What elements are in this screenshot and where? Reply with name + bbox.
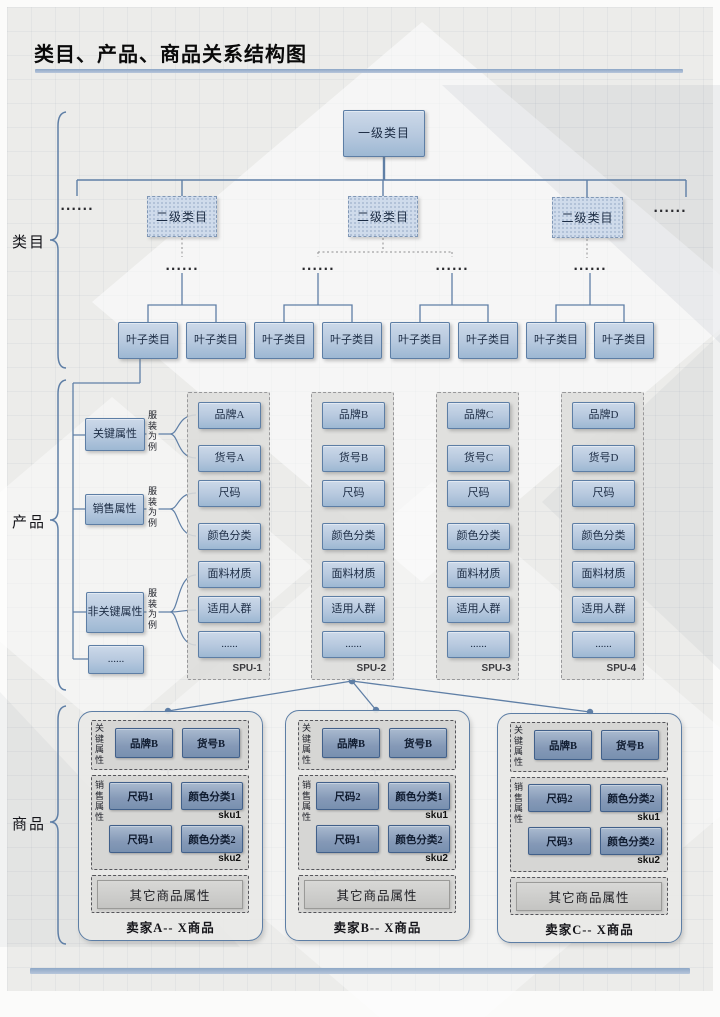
- sku-tag: sku1: [605, 812, 660, 823]
- spu-item: 品牌D: [572, 402, 635, 429]
- seller-sales-attr-label: 销售属性: [94, 780, 105, 822]
- spu-item: 面料材质: [322, 561, 385, 588]
- clothing-example-note: 服装为例: [147, 486, 158, 528]
- seller-brand-box: 品牌B: [115, 728, 173, 758]
- sku-color-box: 颜色分类1: [181, 782, 243, 810]
- spu-item: 货号D: [572, 445, 635, 472]
- seller-brand-box: 品牌B: [534, 730, 592, 760]
- spu-item: ......: [572, 631, 635, 658]
- seller-name: 卖家B-- X商品: [285, 917, 470, 936]
- sku-color-box: 颜色分类2: [388, 825, 450, 853]
- leaf-category-box: 叶子类目: [594, 322, 654, 359]
- spu-name: SPU-2: [319, 663, 386, 674]
- ellipsis-hidden-levels: ......: [572, 259, 608, 273]
- sku-size-box: 尺码1: [109, 825, 172, 853]
- sku-color-box: 颜色分类2: [181, 825, 243, 853]
- seller-article-box: 货号B: [601, 730, 659, 760]
- more-attributes-box: ......: [88, 645, 144, 674]
- spu-item: 颜色分类: [447, 523, 510, 550]
- leaf-category-box: 叶子类目: [118, 322, 178, 359]
- sku-size-box: 尺码2: [316, 782, 379, 810]
- spu-item: 货号B: [322, 445, 385, 472]
- ellipsis-hidden-levels: ......: [300, 259, 336, 273]
- level2-category-box: 二级类目: [552, 197, 623, 238]
- level2-category-box: 二级类目: [147, 196, 217, 237]
- seller-brand-box: 品牌B: [322, 728, 380, 758]
- spu-name: SPU-1: [195, 663, 262, 674]
- sku-size-box: 尺码1: [109, 782, 172, 810]
- other-attributes-box: 其它商品属性: [516, 882, 662, 911]
- spu-item: ......: [322, 631, 385, 658]
- nonkey-attributes-box: 非关键属性: [86, 592, 144, 633]
- spu-item: 适用人群: [572, 596, 635, 623]
- spu-item: 适用人群: [447, 596, 510, 623]
- spu-item: 尺码: [198, 480, 261, 507]
- spu-item: 颜色分类: [198, 523, 261, 550]
- level1-category-box: 一级类目: [343, 110, 425, 157]
- spu-name: SPU-4: [569, 663, 636, 674]
- key-attributes-box: 关键属性: [85, 418, 145, 451]
- sku-tag: sku1: [393, 810, 448, 821]
- clothing-example-note: 服装为例: [147, 588, 158, 630]
- ellipsis-hidden-levels: ......: [434, 259, 470, 273]
- sku-tag: sku2: [186, 853, 241, 864]
- leaf-category-box: 叶子类目: [186, 322, 246, 359]
- ellipsis-more-categories: ......: [650, 201, 690, 215]
- spu-item: 颜色分类: [572, 523, 635, 550]
- diagram-page: 类目、产品、商品关系结构图 类目 产品 商品 一级类目 二级类目 二级类目 二级…: [0, 0, 720, 1017]
- seller-name: 卖家C-- X商品: [497, 919, 682, 938]
- leaf-category-box: 叶子类目: [526, 322, 586, 359]
- seller-key-attr-label: 关键属性: [513, 725, 524, 767]
- sku-size-box: 尺码3: [528, 827, 591, 855]
- sku-size-box: 尺码2: [528, 784, 591, 812]
- sku-color-box: 颜色分类1: [388, 782, 450, 810]
- section-label-commodity: 商品: [12, 813, 46, 834]
- seller-key-attr-label: 关键属性: [301, 723, 312, 765]
- page-title: 类目、产品、商品关系结构图: [34, 38, 307, 67]
- spu-item: 品牌B: [322, 402, 385, 429]
- seller-key-attr-label: 关键属性: [94, 723, 105, 765]
- leaf-category-box: 叶子类目: [458, 322, 518, 359]
- level2-category-box: 二级类目: [348, 196, 418, 237]
- seller-article-box: 货号B: [389, 728, 447, 758]
- sku-color-box: 颜色分类2: [600, 827, 662, 855]
- spu-item: 适用人群: [322, 596, 385, 623]
- spu-item: 尺码: [322, 480, 385, 507]
- sku-color-box: 颜色分类2: [600, 784, 662, 812]
- spu-item: 面料材质: [447, 561, 510, 588]
- spu-name: SPU-3: [444, 663, 511, 674]
- leaf-category-box: 叶子类目: [322, 322, 382, 359]
- seller-name: 卖家A-- X商品: [78, 917, 263, 936]
- sku-tag: sku2: [393, 853, 448, 864]
- spu-item: 货号C: [447, 445, 510, 472]
- spu-item: 货号A: [198, 445, 261, 472]
- sku-size-box: 尺码1: [316, 825, 379, 853]
- other-attributes-box: 其它商品属性: [304, 880, 450, 909]
- seller-sales-attr-label: 销售属性: [301, 780, 312, 822]
- spu-item: 面料材质: [572, 561, 635, 588]
- ellipsis-more-categories: ......: [57, 199, 97, 213]
- spu-item: 品牌A: [198, 402, 261, 429]
- seller-article-box: 货号B: [182, 728, 240, 758]
- spu-item: 尺码: [572, 480, 635, 507]
- spu-item: 品牌C: [447, 402, 510, 429]
- spu-item: 适用人群: [198, 596, 261, 623]
- section-label-product: 产品: [12, 511, 46, 532]
- clothing-example-note: 服装为例: [147, 410, 158, 452]
- sku-tag: sku1: [186, 810, 241, 821]
- ellipsis-hidden-levels: ......: [164, 259, 200, 273]
- sales-attributes-box: 销售属性: [85, 494, 144, 525]
- sku-tag: sku2: [605, 855, 660, 866]
- spu-item: ......: [198, 631, 261, 658]
- spu-item: 面料材质: [198, 561, 261, 588]
- footer-rule: [30, 968, 690, 974]
- seller-sales-attr-label: 销售属性: [513, 782, 524, 824]
- spu-item: 颜色分类: [322, 523, 385, 550]
- leaf-category-box: 叶子类目: [390, 322, 450, 359]
- spu-item: 尺码: [447, 480, 510, 507]
- leaf-category-box: 叶子类目: [254, 322, 314, 359]
- other-attributes-box: 其它商品属性: [97, 880, 243, 909]
- section-label-category: 类目: [12, 231, 46, 252]
- title-rule: [35, 69, 683, 73]
- spu-item: ......: [447, 631, 510, 658]
